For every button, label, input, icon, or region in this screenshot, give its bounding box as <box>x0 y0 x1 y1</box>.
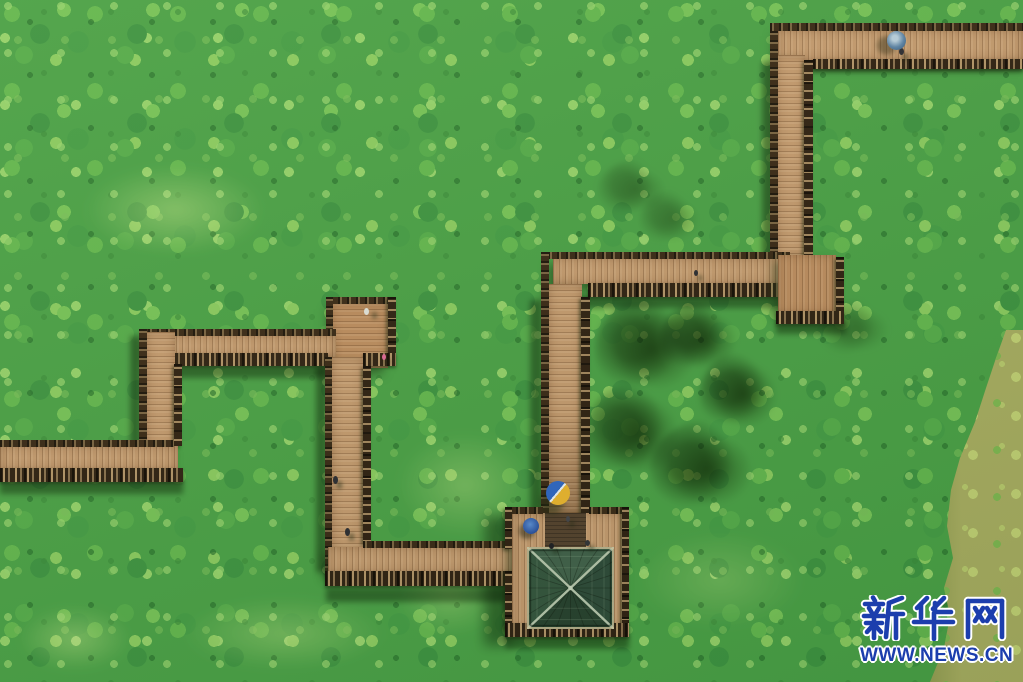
pavilion-railing <box>507 507 543 514</box>
boardwalk-railing <box>325 571 517 586</box>
blue-umbrella-marker <box>523 518 539 534</box>
boardwalk-railing <box>388 297 396 357</box>
boardwalk-railing <box>541 252 549 516</box>
boardwalk-railing <box>174 364 182 446</box>
person-marker-pink <box>382 354 386 360</box>
person-marker <box>333 476 338 484</box>
boardwalk-right-vertical <box>777 55 805 258</box>
boardwalk-railing <box>363 353 396 366</box>
boardwalk-left-vertical <box>147 332 175 452</box>
boardwalk-shadow <box>0 480 183 494</box>
blue-yellow-umbrella-marker <box>546 481 570 505</box>
viewing-platform-right <box>778 255 836 313</box>
xinhuanet-watermark-logo <box>860 595 1010 641</box>
boardwalk-railing <box>363 541 515 548</box>
watermark-url: WWW.NEWS.CN <box>860 645 1020 667</box>
boardwalk-railing <box>581 297 590 516</box>
person-marker <box>566 516 570 522</box>
boardwalk-railing <box>836 257 844 315</box>
boardwalk-railing <box>548 252 790 259</box>
pavilion-railing <box>505 507 512 549</box>
person-marker <box>585 540 590 546</box>
boardwalk-bottom-horizontal <box>328 547 518 573</box>
boardwalk-railing <box>813 59 1023 69</box>
person-marker <box>549 543 554 549</box>
boardwalk-railing <box>0 468 183 482</box>
boardwalk-railing <box>0 440 174 447</box>
light-leaf-patch <box>0 595 150 682</box>
pavilion-roof <box>527 547 614 629</box>
boardwalk-middle-horizontal <box>553 258 790 284</box>
boardwalk-railing <box>363 366 371 543</box>
dark-bush <box>640 190 710 250</box>
boardwalk-railing <box>139 329 147 455</box>
person-marker <box>345 528 350 536</box>
lotus-pond-aerial-photo: WWW.NEWS.CN <box>0 0 1023 682</box>
pavilion-shadow <box>505 635 629 649</box>
pavilion-railing <box>622 507 629 629</box>
boardwalk-railing <box>804 60 813 257</box>
pavilion-railing <box>505 571 512 629</box>
light-leaf-patch <box>610 515 830 645</box>
boardwalk-left-horizontal <box>0 446 178 470</box>
boardwalk-center-left-vertical <box>332 357 363 573</box>
light-leaf-patch <box>55 150 295 270</box>
blue-umbrella-marker <box>887 31 906 50</box>
boardwalk-railing <box>770 31 778 258</box>
boardwalk-railing <box>770 23 1023 31</box>
person-marker <box>364 308 369 315</box>
dark-bush <box>700 350 790 440</box>
boardwalk-railing <box>776 311 844 324</box>
boardwalk-railing <box>325 357 332 573</box>
person-marker <box>694 270 698 276</box>
boardwalk-railing <box>329 297 391 304</box>
boardwalk-railing <box>588 283 784 297</box>
